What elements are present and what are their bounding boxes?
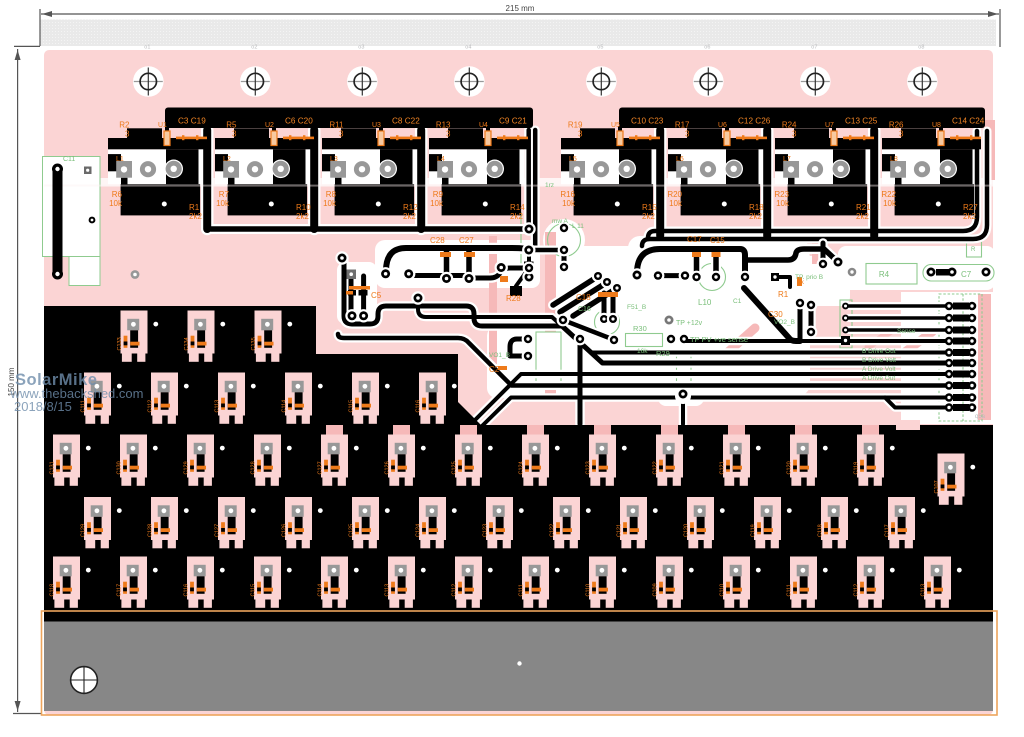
svg-text:2018/8/15: 2018/8/15 (14, 399, 72, 414)
svg-text:o7: o7 (811, 45, 817, 51)
svg-text:2k2: 2k2 (963, 212, 976, 221)
svg-text:C109: C109 (653, 583, 659, 596)
svg-text:C11: C11 (63, 156, 75, 163)
svg-text:L2: L2 (223, 156, 231, 163)
svg-text:R1: R1 (189, 203, 200, 212)
svg-text:10k: 10k (430, 199, 444, 208)
svg-text:C111: C111 (787, 584, 793, 596)
svg-text:2k2: 2k2 (510, 212, 523, 221)
svg-text:B Drive Out: B Drive Out (862, 348, 896, 355)
svg-text:R29: R29 (656, 349, 670, 358)
svg-text:2k2: 2k2 (403, 212, 416, 221)
svg-text:U2: U2 (265, 122, 274, 129)
svg-text:1rz: 1rz (545, 182, 554, 189)
svg-text:C121: C121 (617, 524, 623, 537)
svg-text:C7: C7 (961, 270, 972, 279)
svg-text:C107: C107 (934, 480, 940, 493)
svg-text:C123: C123 (483, 524, 489, 537)
svg-text:3: 3 (446, 130, 451, 139)
svg-text:C18: C18 (576, 293, 591, 302)
svg-text:C28: C28 (430, 236, 445, 245)
svg-text:R8: R8 (326, 190, 337, 199)
svg-text:C112: C112 (854, 584, 860, 597)
svg-text:215 mm: 215 mm (506, 4, 535, 13)
svg-text:10k: 10k (883, 199, 897, 208)
svg-text:C113: C113 (921, 584, 927, 597)
svg-text:C127: C127 (215, 524, 221, 537)
svg-text:L6: L6 (676, 156, 684, 163)
svg-text:3: 3 (792, 130, 797, 139)
svg-text:3: 3 (125, 130, 130, 139)
svg-text:C129: C129 (184, 461, 190, 474)
svg-text:C111: C111 (81, 400, 87, 412)
svg-text:10k: 10k (776, 199, 790, 208)
svg-text:R19: R19 (568, 121, 583, 130)
svg-text:R1: R1 (778, 290, 789, 299)
svg-text:C119: C119 (854, 462, 860, 475)
svg-text:C135: C135 (251, 337, 257, 350)
svg-text:A Drive Volt: A Drive Volt (862, 366, 896, 373)
svg-text:U5: U5 (611, 122, 620, 129)
svg-text:C120: C120 (787, 461, 793, 474)
svg-text:R6: R6 (112, 190, 123, 199)
svg-text:C129: C129 (81, 524, 87, 537)
svg-text:C124: C124 (416, 524, 422, 537)
svg-text:C112: C112 (452, 584, 458, 597)
svg-text:C118: C118 (818, 524, 824, 537)
svg-text:C16: C16 (578, 306, 591, 313)
svg-text:TP +12v: TP +12v (676, 320, 703, 327)
svg-text:o2: o2 (251, 45, 257, 51)
svg-text:C118: C118 (50, 584, 56, 597)
svg-text:C125: C125 (452, 461, 458, 474)
svg-text:C130: C130 (117, 461, 123, 474)
svg-text:R13: R13 (436, 121, 451, 130)
svg-text:R4: R4 (879, 270, 890, 279)
svg-text:C110: C110 (586, 584, 592, 597)
svg-text:C134: C134 (184, 337, 190, 350)
svg-text:R7: R7 (219, 190, 230, 199)
svg-text:C27: C27 (459, 236, 474, 245)
svg-text:R16: R16 (560, 190, 575, 199)
svg-text:C114: C114 (282, 400, 288, 413)
svg-text:C115: C115 (349, 400, 355, 413)
svg-text:U8: U8 (932, 122, 941, 129)
svg-text:10k: 10k (323, 199, 337, 208)
svg-text:C121: C121 (720, 461, 726, 474)
svg-text:L8: L8 (890, 156, 898, 163)
svg-text:U7: U7 (825, 122, 834, 129)
svg-text:L 11: L 11 (572, 223, 584, 230)
svg-text:C6 C20: C6 C20 (285, 117, 313, 126)
svg-text:VO2_B: VO2_B (774, 319, 795, 326)
svg-text:C17: C17 (687, 235, 702, 244)
svg-text:C128: C128 (251, 461, 257, 474)
svg-text:C1: C1 (733, 298, 742, 305)
svg-text:3: 3 (899, 130, 904, 139)
svg-text:R14: R14 (510, 203, 525, 212)
svg-text:C113: C113 (385, 584, 391, 597)
svg-text:R24: R24 (782, 121, 797, 130)
svg-text:C8 C22: C8 C22 (392, 117, 420, 126)
svg-text:C116: C116 (416, 400, 422, 413)
svg-text:U3: U3 (372, 122, 381, 129)
svg-text:L5: L5 (569, 156, 577, 163)
svg-text:R12: R12 (403, 203, 418, 212)
svg-text:R23: R23 (774, 190, 789, 199)
svg-text:C126: C126 (282, 524, 288, 537)
svg-text:3: 3 (685, 130, 690, 139)
svg-text:L10: L10 (698, 298, 712, 307)
svg-text:10k: 10k (216, 199, 230, 208)
svg-text:U1: U1 (158, 122, 167, 129)
svg-text:VO1_B: VO1_B (489, 352, 510, 359)
svg-text:C127: C127 (318, 461, 324, 474)
svg-text:2k2: 2k2 (642, 212, 655, 221)
svg-text:C14 C24: C14 C24 (952, 117, 985, 126)
svg-text:C122: C122 (653, 461, 659, 474)
svg-text:3: 3 (578, 130, 583, 139)
svg-text:R9: R9 (433, 190, 444, 199)
svg-text:U6: U6 (718, 122, 727, 129)
svg-text:Sense: Sense (897, 328, 916, 335)
svg-text:C117: C117 (117, 584, 123, 597)
svg-text:TP. prio B: TP. prio B (795, 274, 823, 281)
svg-text:A Drive Out: A Drive Out (862, 375, 895, 382)
svg-text:o1: o1 (144, 45, 150, 51)
svg-text:L1: L1 (116, 156, 124, 163)
svg-text:10k: 10k (669, 199, 683, 208)
svg-text:B Drive Volt: B Drive Volt (862, 357, 896, 364)
svg-text:mw A: mw A (552, 218, 569, 225)
svg-text:C9 C21: C9 C21 (499, 117, 527, 126)
svg-text:C113: C113 (215, 400, 221, 413)
svg-text:10k: 10k (109, 199, 123, 208)
svg-text:C15: C15 (710, 236, 725, 245)
svg-text:C117: C117 (885, 524, 891, 537)
svg-text:C115: C115 (251, 584, 257, 597)
svg-text:R10: R10 (296, 203, 311, 212)
svg-text:2k2: 2k2 (749, 212, 762, 221)
svg-text:o5: o5 (597, 45, 603, 51)
svg-text:R18: R18 (749, 203, 764, 212)
svg-text:L3: L3 (330, 156, 338, 163)
svg-text:C124: C124 (519, 461, 525, 474)
svg-text:q5a: q5a (975, 414, 986, 420)
svg-text:R28: R28 (506, 294, 521, 303)
svg-text:3: 3 (339, 130, 344, 139)
svg-text:C30: C30 (768, 310, 783, 319)
svg-text:16k: 16k (637, 348, 648, 355)
svg-text:C128: C128 (148, 524, 154, 537)
svg-text:C120: C120 (684, 524, 690, 537)
svg-text:C12 C26: C12 C26 (738, 117, 771, 126)
svg-text:o3: o3 (358, 45, 364, 51)
svg-text:C119: C119 (751, 524, 757, 537)
svg-text:C122: C122 (550, 524, 556, 537)
svg-text:R26: R26 (889, 121, 904, 130)
svg-text:10k: 10k (562, 199, 576, 208)
svg-text:C3 C19: C3 C19 (178, 117, 206, 126)
svg-text:C110: C110 (720, 584, 726, 597)
svg-text:o8: o8 (918, 45, 924, 51)
svg-text:o4: o4 (465, 45, 471, 51)
svg-text:R17: R17 (675, 121, 690, 130)
svg-text:U4: U4 (479, 122, 488, 129)
svg-text:3: 3 (232, 130, 237, 139)
svg-text:2k2: 2k2 (189, 212, 202, 221)
svg-text:R2: R2 (119, 121, 130, 130)
svg-text:L4: L4 (437, 156, 445, 163)
svg-text:R11: R11 (329, 121, 344, 130)
svg-text:2k2: 2k2 (296, 212, 309, 221)
svg-text:2k2: 2k2 (856, 212, 869, 221)
svg-text:C112: C112 (148, 400, 154, 413)
svg-text:C111: C111 (519, 584, 525, 596)
svg-text:C116: C116 (184, 584, 190, 597)
svg-text:C5: C5 (371, 291, 382, 300)
svg-text:o6: o6 (704, 45, 710, 51)
svg-text:L7: L7 (783, 156, 791, 163)
svg-text:R30: R30 (633, 324, 647, 333)
svg-text:C13 C25: C13 C25 (845, 117, 878, 126)
svg-text:TP PV +ve sense: TP PV +ve sense (690, 335, 748, 344)
svg-text:R21: R21 (856, 203, 871, 212)
svg-text:C125: C125 (349, 524, 355, 537)
svg-text:R20: R20 (667, 190, 682, 199)
svg-text:C114: C114 (318, 584, 324, 597)
svg-text:R27: R27 (963, 203, 978, 212)
svg-text:R5: R5 (226, 121, 237, 130)
svg-text:F51_B: F51_B (627, 304, 646, 311)
svg-text:R: R (971, 247, 976, 253)
svg-text:C133: C133 (117, 337, 123, 350)
svg-text:C126: C126 (385, 461, 391, 474)
svg-text:C10 C23: C10 C23 (631, 117, 664, 126)
svg-text:C131: C131 (50, 461, 56, 474)
svg-text:C123: C123 (586, 461, 592, 474)
svg-text:R15: R15 (642, 203, 657, 212)
svg-text:R22: R22 (881, 190, 896, 199)
